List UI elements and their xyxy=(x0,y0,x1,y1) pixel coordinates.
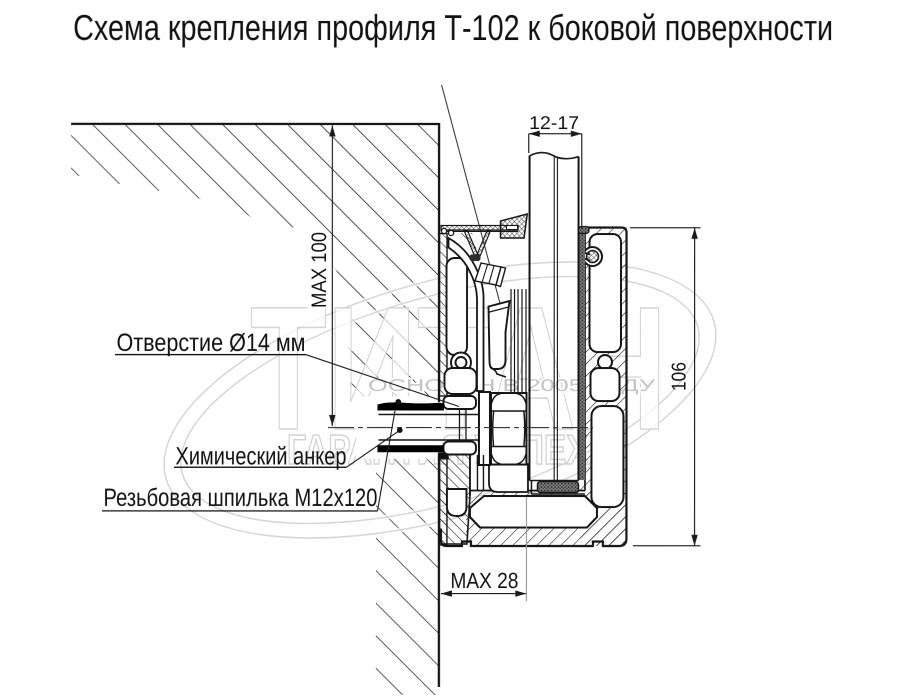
svg-text:MAX 28: MAX 28 xyxy=(450,568,518,593)
svg-text:12-17: 12-17 xyxy=(529,112,579,133)
svg-text:Схема крепления профиля Т-102: Схема крепления профиля Т-102 к боковой … xyxy=(73,7,833,48)
svg-text:106: 106 xyxy=(668,362,690,391)
svg-text:Отверстие Ø14 мм: Отверстие Ø14 мм xyxy=(116,329,305,357)
svg-text:Химический анкер: Химический анкер xyxy=(175,442,346,470)
svg-text:Резьбовая шпилька М12х120: Резьбовая шпилька М12х120 xyxy=(103,484,377,512)
svg-text:MAX 100: MAX 100 xyxy=(308,232,331,308)
